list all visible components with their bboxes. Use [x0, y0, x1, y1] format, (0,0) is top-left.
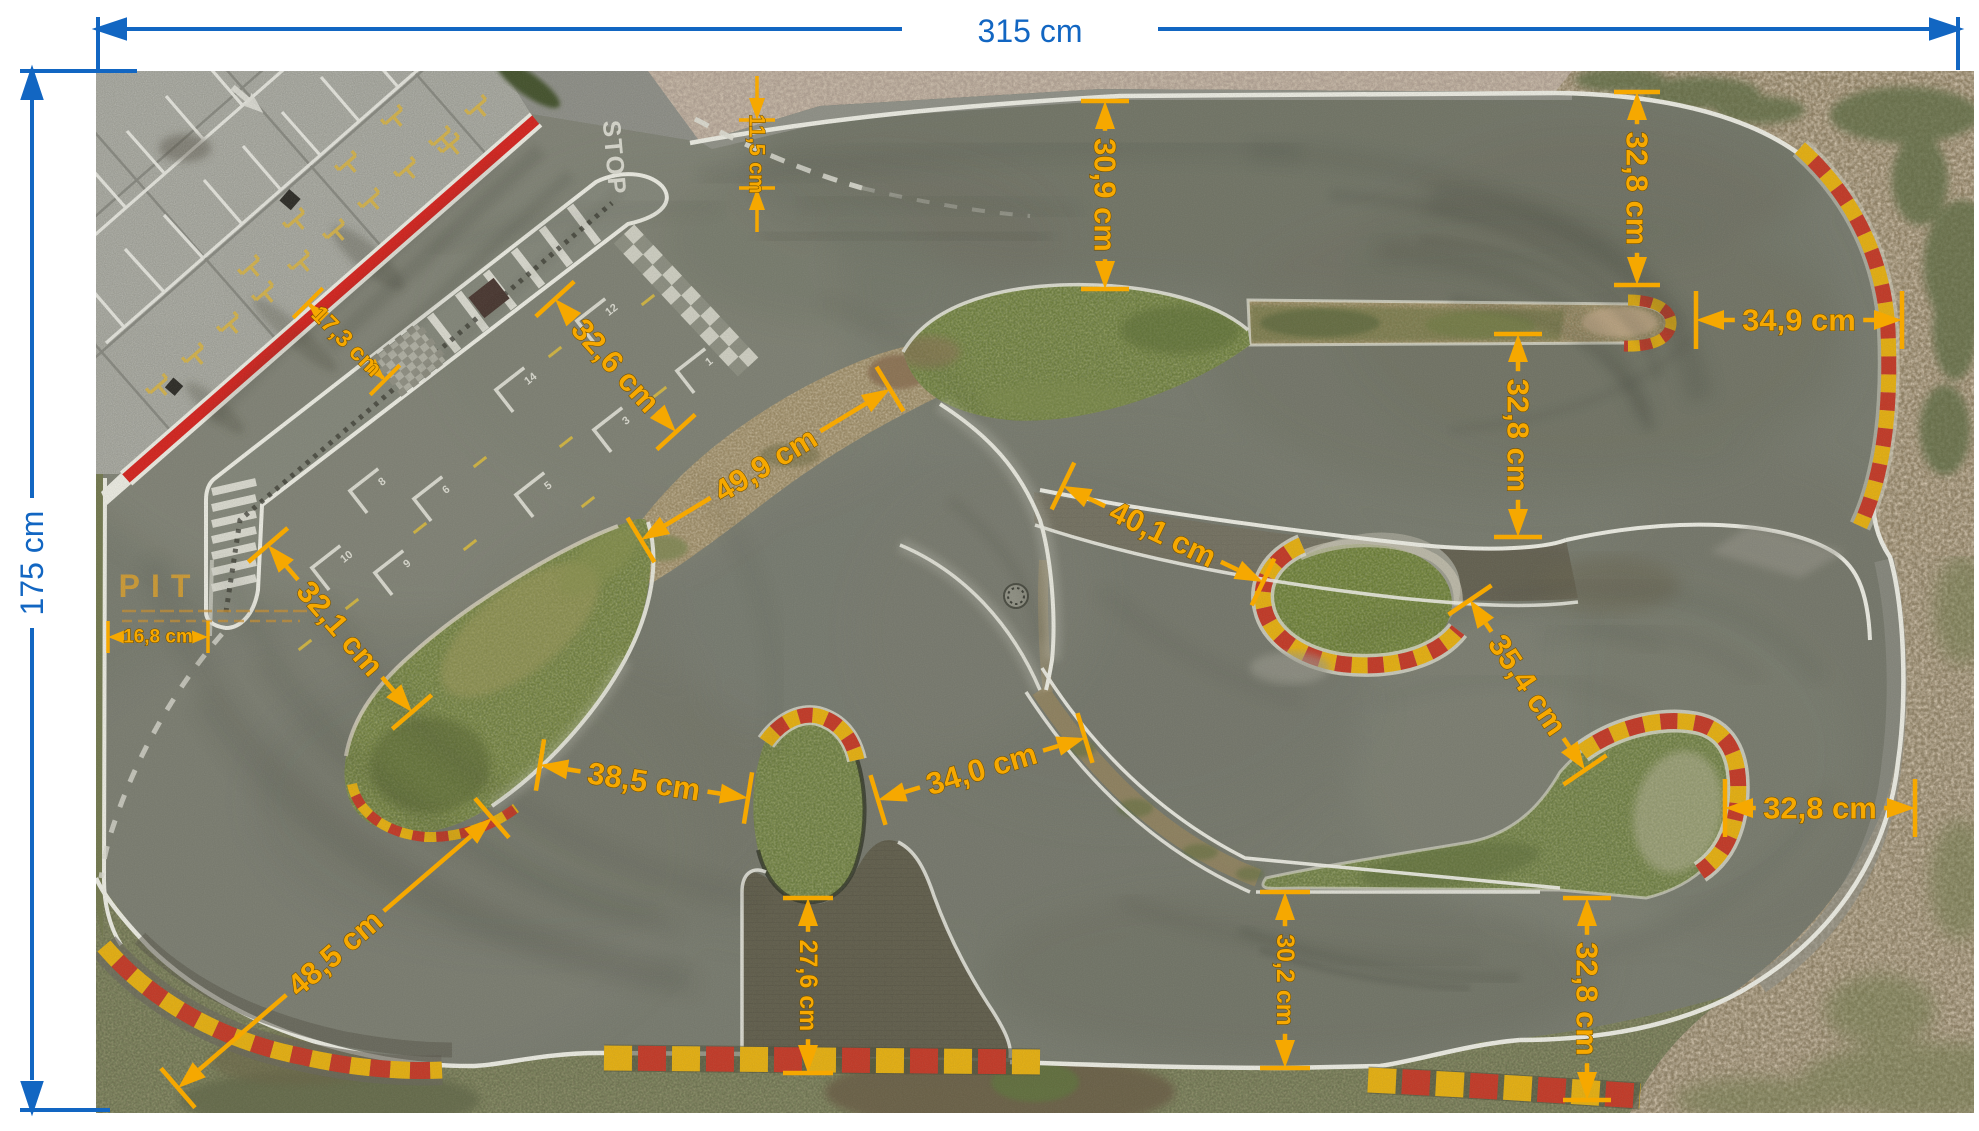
svg-text:16,8 cm: 16,8 cm: [123, 627, 193, 648]
svg-text:32,8 cm: 32,8 cm: [1620, 132, 1655, 246]
svg-text:30,2 cm: 30,2 cm: [1271, 934, 1299, 1026]
svg-text:30,9 cm: 30,9 cm: [1088, 138, 1123, 252]
svg-text:11,5 cm: 11,5 cm: [745, 114, 770, 194]
svg-text:27,6 cm: 27,6 cm: [794, 940, 822, 1032]
svg-text:32,8 cm: 32,8 cm: [1570, 942, 1605, 1056]
svg-text:175 cm: 175 cm: [14, 511, 50, 616]
svg-text:32,8 cm: 32,8 cm: [1763, 791, 1877, 826]
svg-text:32,8 cm: 32,8 cm: [1501, 379, 1536, 493]
svg-text:315 cm: 315 cm: [978, 13, 1083, 49]
svg-text:34,9 cm: 34,9 cm: [1742, 303, 1856, 338]
